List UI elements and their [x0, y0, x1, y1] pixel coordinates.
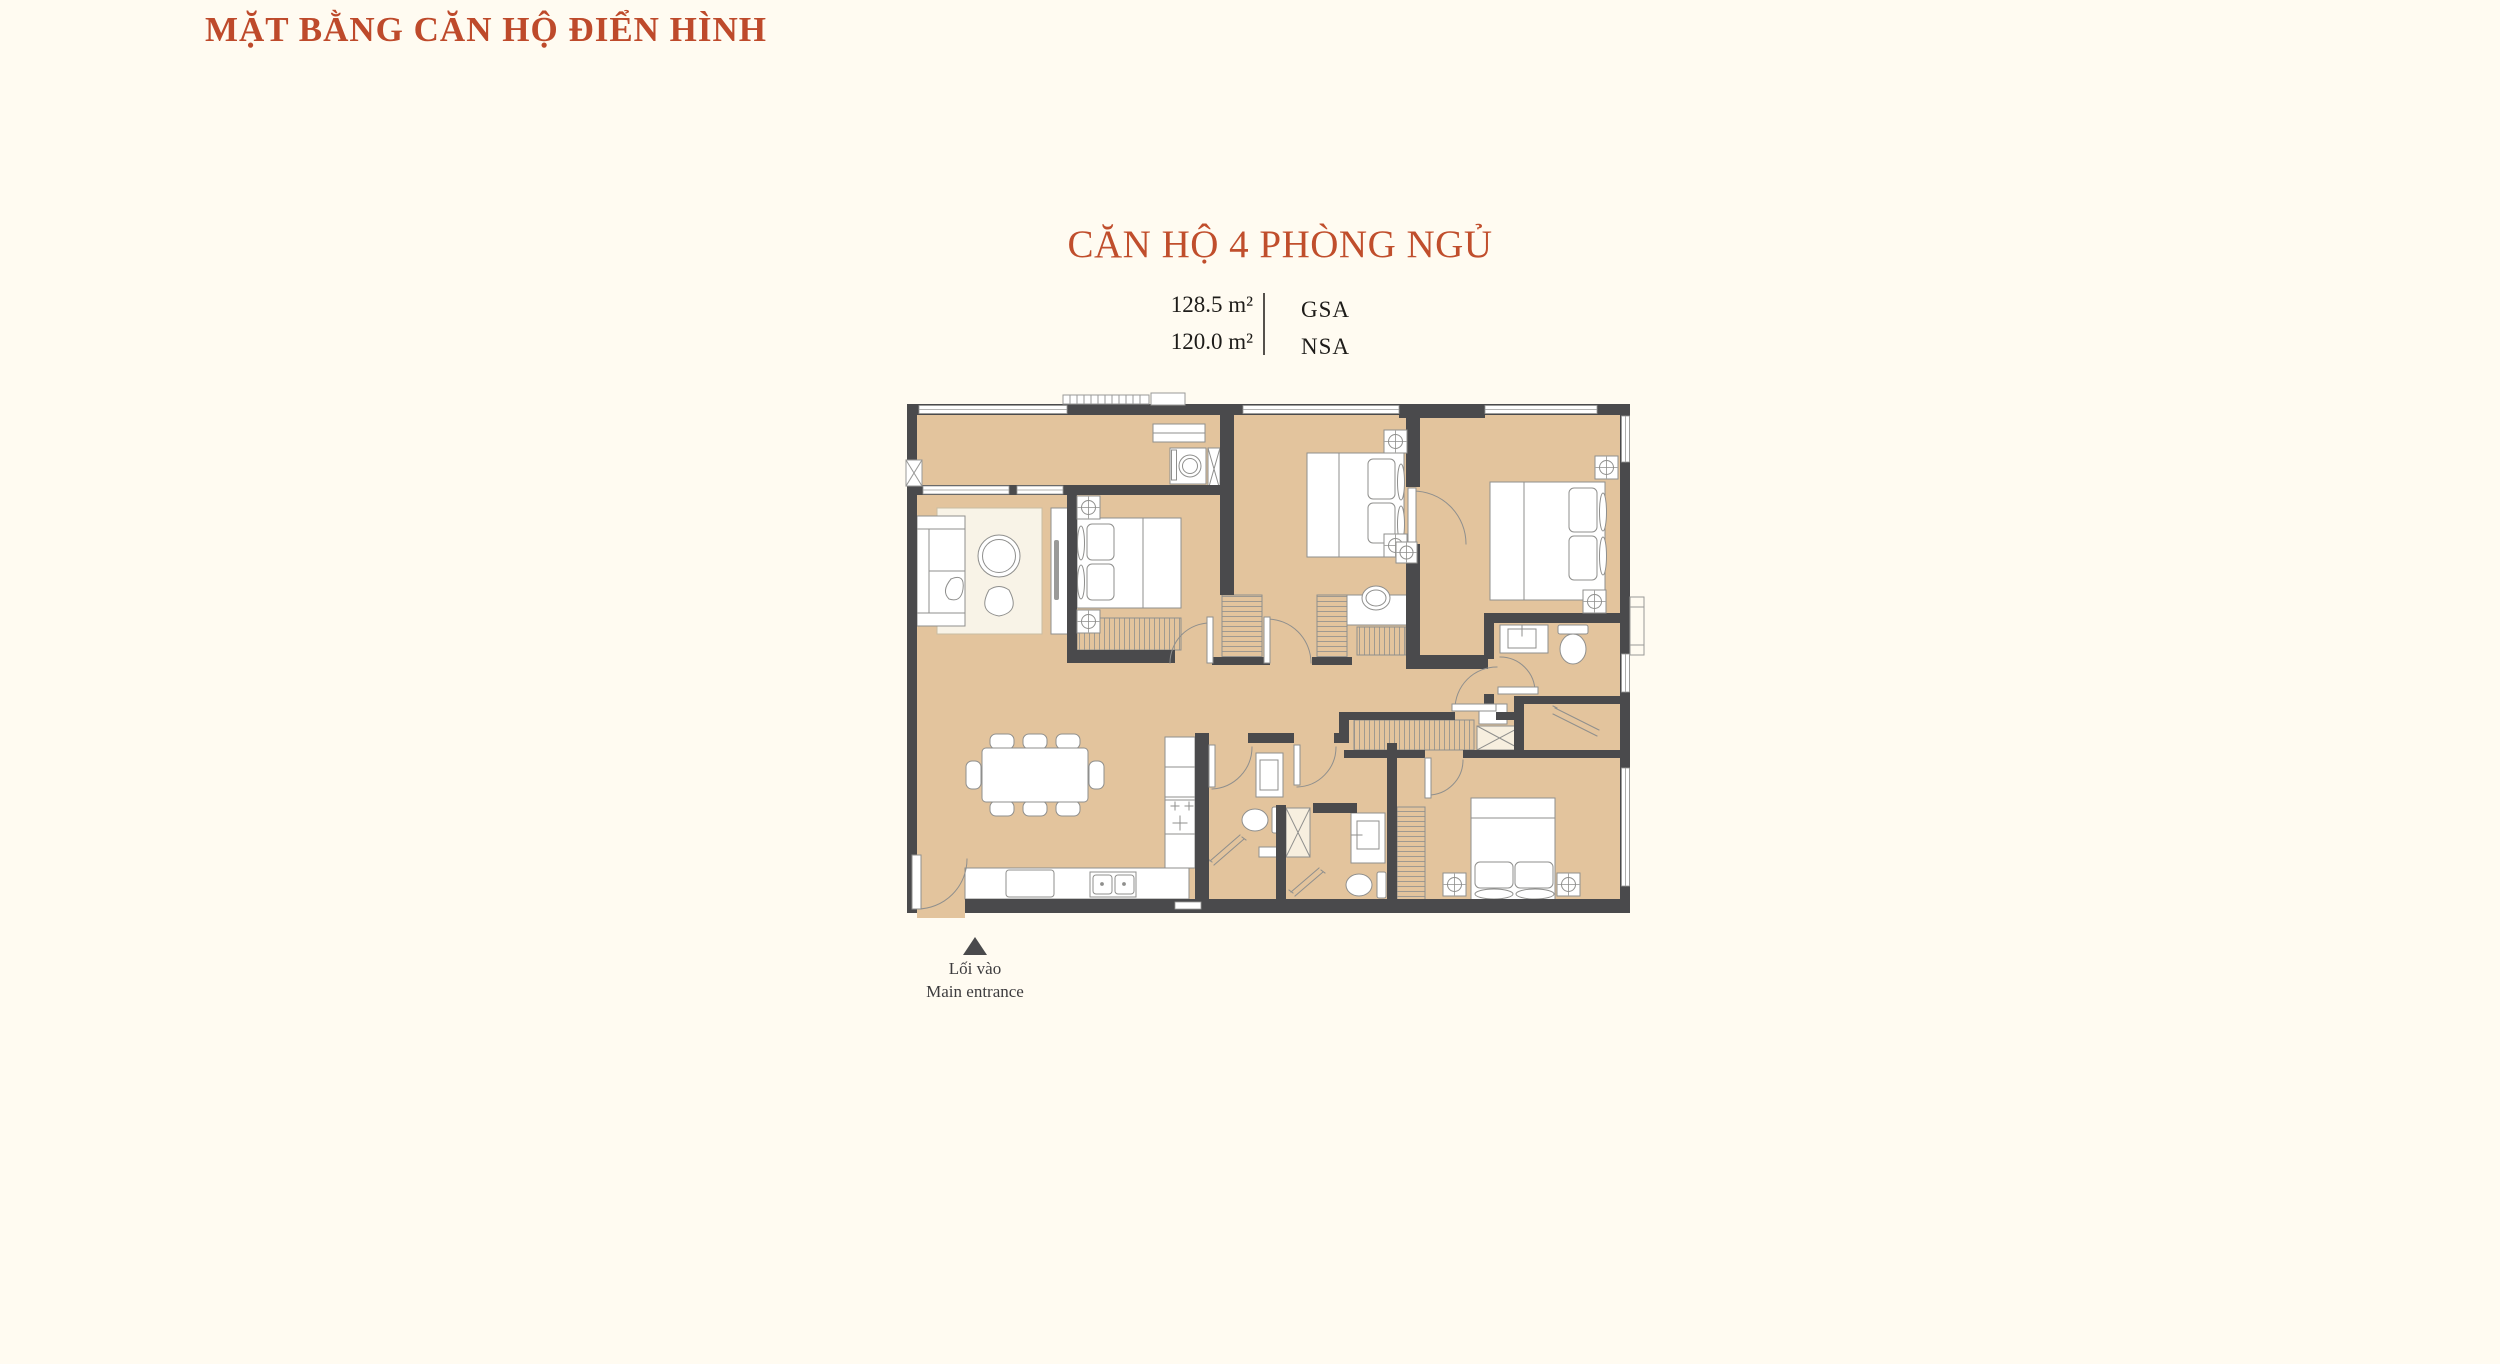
- armchair: [985, 587, 1013, 617]
- entrance-label-en: Main entrance: [895, 982, 1055, 1002]
- coffee-table: [978, 535, 1020, 577]
- entrance-label-vi: Lối vào: [895, 959, 1055, 979]
- sofa: [917, 516, 965, 626]
- washing-machine: [1170, 448, 1206, 484]
- shaft-box: [1208, 448, 1220, 490]
- nsa-area-value: 120.0 m²: [1123, 329, 1253, 355]
- floor-plan-svg: [905, 392, 1645, 924]
- unit-heading: CĂN HỘ 4 PHÒNG NGỦ: [1030, 222, 1530, 267]
- wardrobe-column: [1397, 807, 1425, 900]
- toilet: [1558, 625, 1588, 664]
- right-balcony-bracket: [1630, 597, 1644, 655]
- area-divider-line: [1263, 293, 1265, 355]
- ac-ledge: [1063, 395, 1149, 404]
- kitchen-sink: [1090, 872, 1136, 897]
- wall-vent: [1175, 902, 1201, 909]
- fridge: [1006, 870, 1054, 897]
- stove: [1165, 800, 1195, 834]
- nsa-area-label: NSA: [1301, 334, 1350, 360]
- gsa-area-label: GSA: [1301, 297, 1350, 323]
- up-triangle-icon: [963, 937, 987, 955]
- toilet: [1346, 872, 1386, 898]
- tv-console: [1051, 508, 1068, 634]
- ledge-box: [1151, 393, 1185, 405]
- shaft-x: [1286, 808, 1310, 857]
- page-title: MẶT BẰNG CĂN HỘ ĐIỂN HÌNH: [205, 10, 767, 50]
- gsa-area-value: 128.5 m²: [1123, 292, 1253, 318]
- dining-table: [982, 748, 1088, 802]
- left-utility-box: [906, 460, 922, 486]
- floor-plan: [905, 392, 1645, 924]
- corridor-wardrobe: [1354, 720, 1474, 750]
- bedroom-3-furniture: [1490, 482, 1607, 600]
- bedroom-4-furniture: [1397, 798, 1555, 900]
